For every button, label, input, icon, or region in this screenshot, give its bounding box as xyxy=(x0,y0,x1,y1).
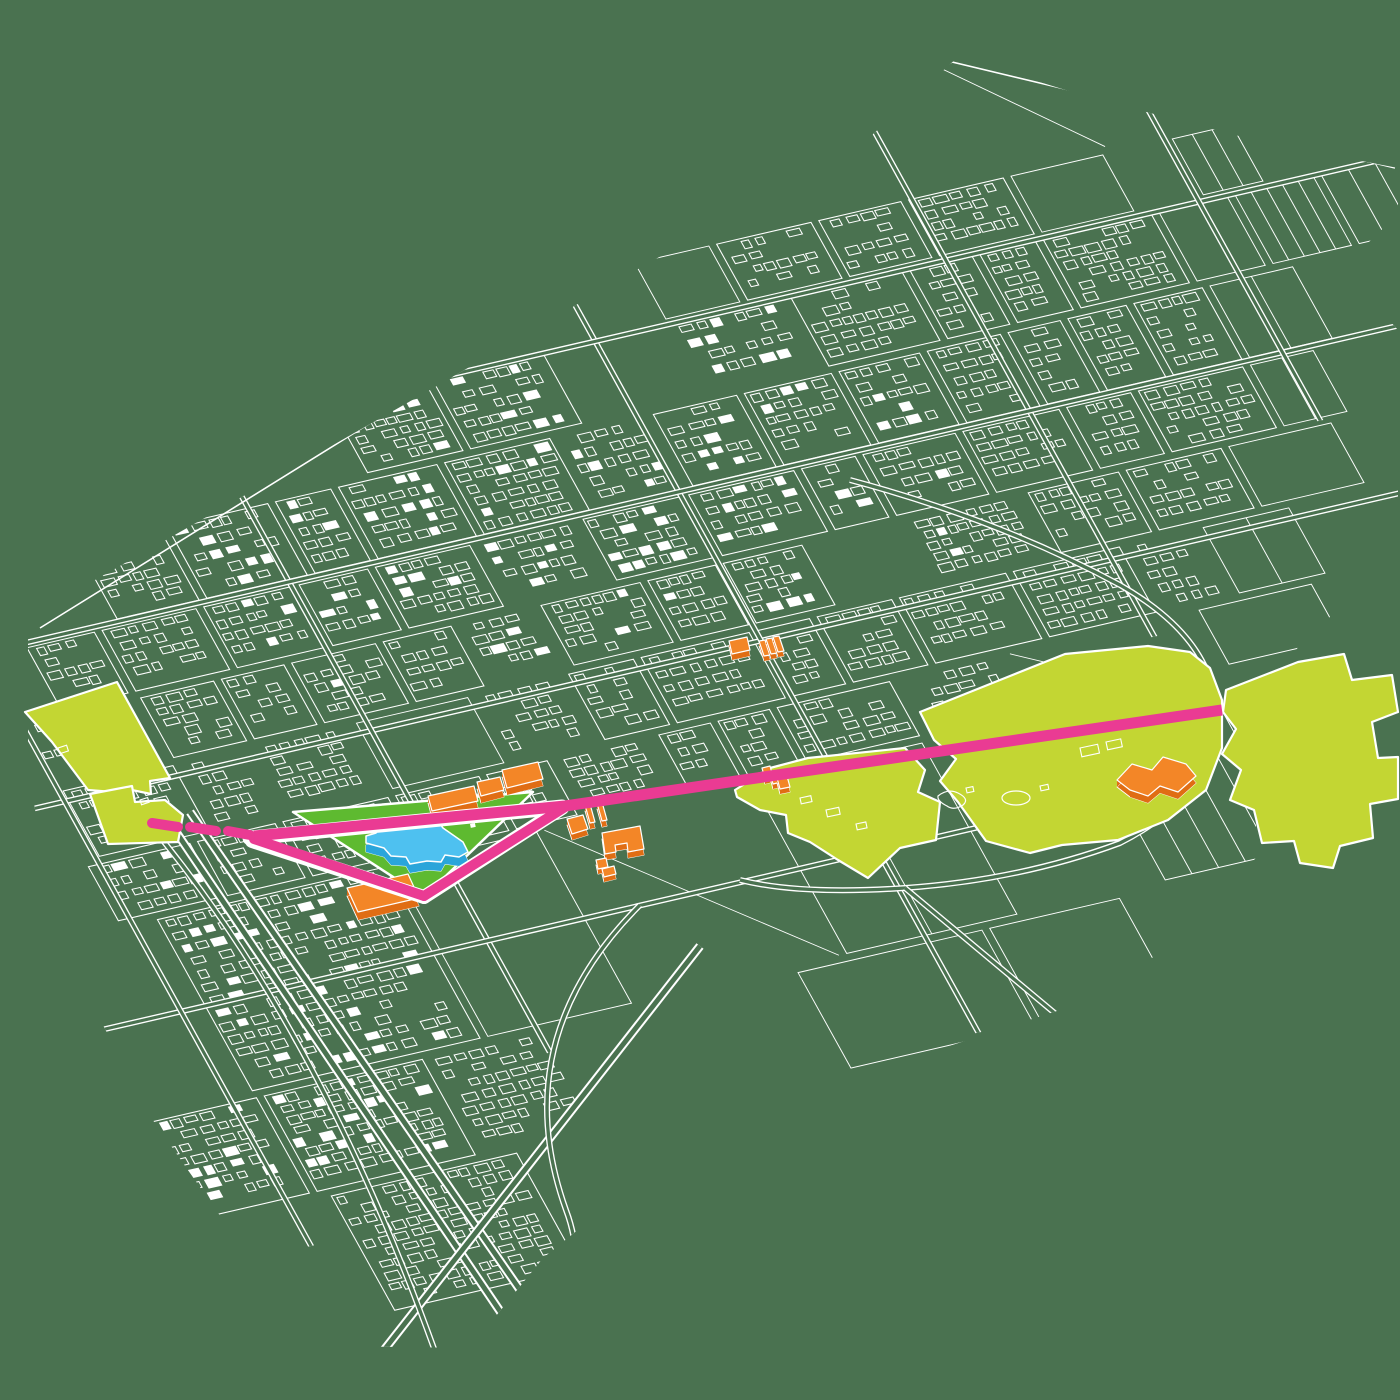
route-dash-segment xyxy=(228,831,250,835)
orange-building-9 xyxy=(602,866,616,882)
urban-plan-map xyxy=(0,0,1400,1400)
route-dash-segment xyxy=(190,827,216,831)
map-stage xyxy=(0,0,1400,1400)
route-dash-segment xyxy=(152,823,178,827)
orange-building-10 xyxy=(729,637,750,660)
